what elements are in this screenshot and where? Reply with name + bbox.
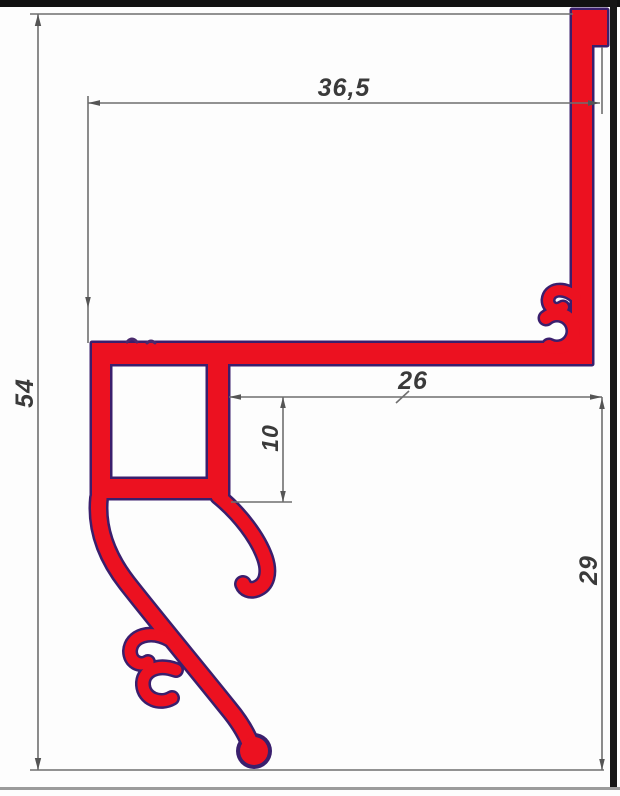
dim-label-26: 26	[397, 367, 428, 395]
profile-drawing: 36,5 54 26 10 29	[0, 0, 620, 796]
dim-label-36-5: 36,5	[318, 74, 371, 102]
dim-label-54: 54	[11, 378, 39, 408]
technical-drawing-canvas: 36,5 54 26 10 29	[0, 0, 620, 796]
frame-right-border	[610, 0, 617, 790]
frame-top-border	[0, 0, 620, 7]
dim-label-29: 29	[575, 555, 603, 586]
leg-bulb-fill	[240, 737, 268, 765]
frame-bottom-edge	[0, 787, 620, 790]
dim-label-10: 10	[257, 424, 283, 452]
